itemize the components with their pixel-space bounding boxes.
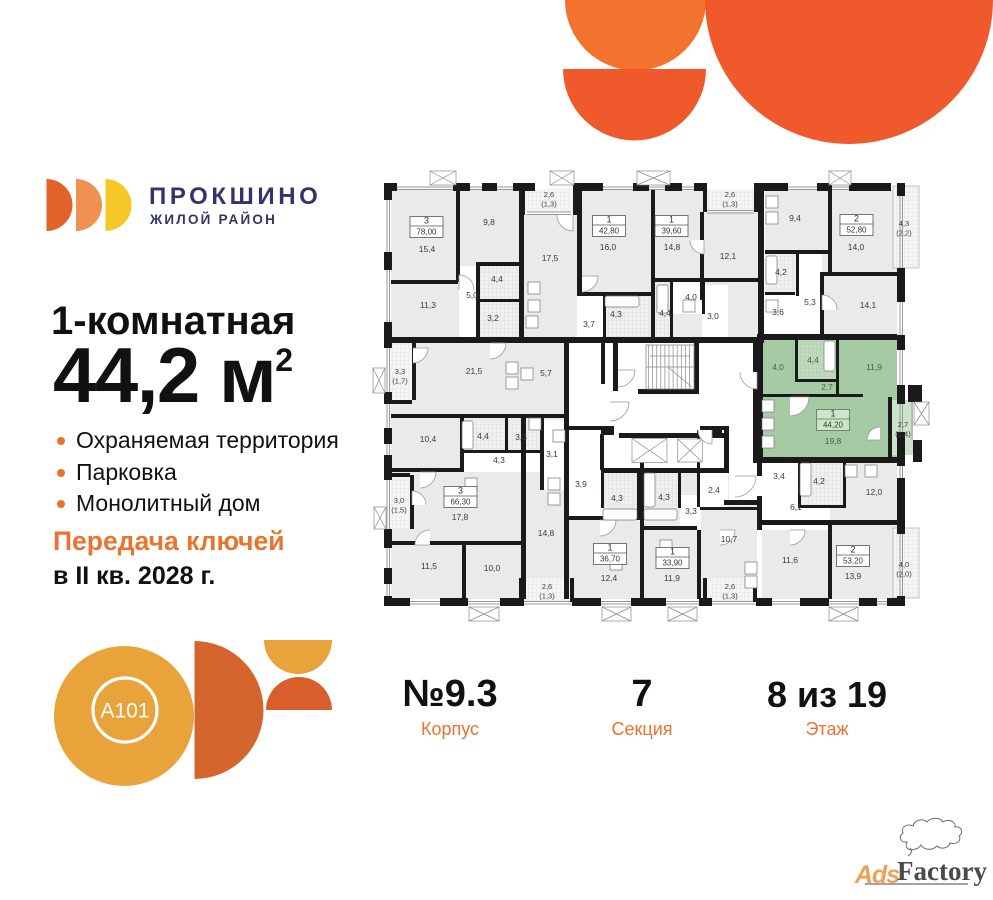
svg-text:Ads: Ads xyxy=(854,861,900,889)
svg-text:11,9: 11,9 xyxy=(664,573,680,583)
svg-text:14,1: 14,1 xyxy=(860,300,877,310)
svg-text:2,4: 2,4 xyxy=(708,485,720,495)
svg-text:1: 1 xyxy=(606,215,611,225)
svg-text:21,5: 21,5 xyxy=(466,366,483,376)
svg-text:2,7: 2,7 xyxy=(821,382,833,392)
svg-text:4,0: 4,0 xyxy=(685,292,697,302)
svg-text:4,0: 4,0 xyxy=(772,362,784,372)
svg-text:3,2: 3,2 xyxy=(487,313,499,323)
svg-text:2: 2 xyxy=(850,545,855,555)
svg-text:4,4: 4,4 xyxy=(491,274,503,284)
svg-text:4,3: 4,3 xyxy=(899,219,909,228)
svg-text:2,6: 2,6 xyxy=(725,190,735,199)
svg-text:9,4: 9,4 xyxy=(789,213,801,223)
svg-text:66,30: 66,30 xyxy=(450,498,471,507)
svg-text:4,4: 4,4 xyxy=(659,308,671,318)
svg-text:1: 1 xyxy=(670,547,675,557)
svg-text:1: 1 xyxy=(607,543,612,553)
svg-text:(2,2): (2,2) xyxy=(896,229,912,238)
svg-text:9,8: 9,8 xyxy=(483,217,495,227)
svg-text:3,3: 3,3 xyxy=(395,367,405,376)
svg-text:3,4: 3,4 xyxy=(773,471,785,481)
svg-text:4,2: 4,2 xyxy=(813,476,825,486)
svg-text:17,8: 17,8 xyxy=(452,512,469,522)
svg-text:(1,3): (1,3) xyxy=(539,592,555,601)
svg-text:16,0: 16,0 xyxy=(600,242,617,252)
svg-text:10,4: 10,4 xyxy=(420,434,437,444)
svg-text:11,9: 11,9 xyxy=(866,362,882,372)
svg-text:5,3: 5,3 xyxy=(804,297,816,307)
svg-text:15,4: 15,4 xyxy=(419,244,436,254)
svg-text:78,00: 78,00 xyxy=(416,228,437,237)
svg-text:5,7: 5,7 xyxy=(540,368,552,378)
svg-text:3: 3 xyxy=(458,486,463,496)
svg-text:12,0: 12,0 xyxy=(866,487,883,497)
svg-text:3,0: 3,0 xyxy=(707,311,719,321)
svg-text:4,3: 4,3 xyxy=(610,309,622,319)
svg-text:36,70: 36,70 xyxy=(600,555,621,564)
svg-text:(1,3): (1,3) xyxy=(541,200,557,209)
svg-text:4,3: 4,3 xyxy=(611,493,623,503)
svg-text:2,6: 2,6 xyxy=(725,582,735,591)
svg-text:12,1: 12,1 xyxy=(720,251,737,261)
svg-text:14,0: 14,0 xyxy=(848,242,865,252)
svg-text:11,5: 11,5 xyxy=(421,561,437,571)
svg-text:3,6: 3,6 xyxy=(772,307,784,317)
svg-text:(1,3): (1,3) xyxy=(722,592,738,601)
svg-text:4,0: 4,0 xyxy=(899,560,909,569)
svg-text:3,9: 3,9 xyxy=(575,479,587,489)
svg-text:11,6: 11,6 xyxy=(782,555,798,565)
svg-text:(1,3): (1,3) xyxy=(722,200,738,209)
svg-text:(1,4): (1,4) xyxy=(895,430,911,439)
svg-text:5,0: 5,0 xyxy=(466,290,478,300)
svg-text:13,9: 13,9 xyxy=(845,571,862,581)
svg-text:(1,5): (1,5) xyxy=(391,506,407,515)
svg-text:A101: A101 xyxy=(100,700,149,723)
svg-text:3: 3 xyxy=(424,216,429,226)
svg-text:Factory: Factory xyxy=(897,856,987,886)
svg-text:14,8: 14,8 xyxy=(538,528,555,538)
svg-text:(1,7): (1,7) xyxy=(392,377,408,386)
svg-text:(2,0): (2,0) xyxy=(896,570,912,579)
svg-text:2: 2 xyxy=(854,214,859,224)
svg-text:53,20: 53,20 xyxy=(843,557,864,566)
svg-text:2,6: 2,6 xyxy=(542,582,552,591)
svg-text:6,1: 6,1 xyxy=(790,502,802,512)
svg-text:39,60: 39,60 xyxy=(661,227,682,236)
svg-text:3,3: 3,3 xyxy=(685,506,697,516)
svg-text:4,3: 4,3 xyxy=(658,492,670,502)
svg-text:2,6: 2,6 xyxy=(544,190,554,199)
svg-text:12,4: 12,4 xyxy=(601,573,618,583)
svg-text:4,3: 4,3 xyxy=(493,455,505,465)
svg-text:4,4: 4,4 xyxy=(807,355,819,365)
svg-text:3,7: 3,7 xyxy=(583,319,595,329)
svg-text:44,20: 44,20 xyxy=(823,421,844,430)
svg-text:33,90: 33,90 xyxy=(662,559,683,568)
svg-text:3,0: 3,0 xyxy=(394,496,404,505)
svg-text:1: 1 xyxy=(669,215,674,225)
svg-text:10,7: 10,7 xyxy=(721,534,738,544)
svg-text:17,5: 17,5 xyxy=(542,253,559,263)
svg-text:14,8: 14,8 xyxy=(664,242,681,252)
svg-text:4,4: 4,4 xyxy=(477,431,489,441)
svg-text:1: 1 xyxy=(830,409,835,419)
svg-text:3,3: 3,3 xyxy=(515,432,527,442)
svg-text:52,80: 52,80 xyxy=(846,226,867,235)
svg-text:3,1: 3,1 xyxy=(546,449,558,459)
svg-text:42,80: 42,80 xyxy=(599,227,620,236)
svg-text:10,0: 10,0 xyxy=(484,563,501,573)
svg-text:19,8: 19,8 xyxy=(825,436,842,446)
svg-text:2,7: 2,7 xyxy=(898,420,908,429)
svg-text:11,3: 11,3 xyxy=(420,300,436,310)
svg-text:4,2: 4,2 xyxy=(775,267,787,277)
